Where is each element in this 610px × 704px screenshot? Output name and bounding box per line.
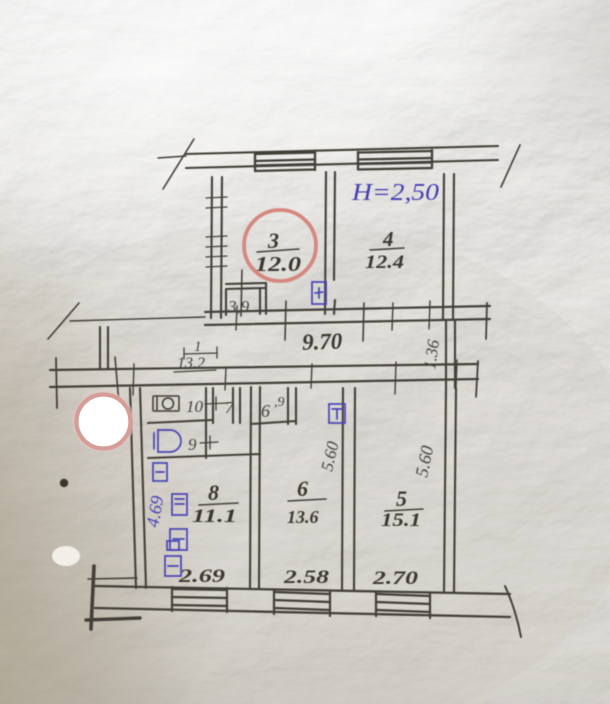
svg-text:4: 4: [382, 227, 394, 251]
svg-text:2.69: 2.69: [178, 566, 226, 587]
svg-text:15.1: 15.1: [381, 510, 421, 531]
svg-text:6: 6: [261, 401, 270, 421]
svg-text:11.1: 11.1: [192, 506, 237, 527]
svg-text:2.58: 2.58: [283, 567, 330, 588]
svg-text:,9: ,9: [274, 395, 285, 410]
svg-text:8: 8: [208, 480, 219, 505]
svg-text:3,9: 3,9: [227, 297, 250, 316]
svg-text:2.70: 2.70: [372, 568, 419, 589]
svg-text:12.4: 12.4: [365, 252, 404, 273]
svg-text:12.0: 12.0: [255, 252, 302, 276]
svg-text:1: 1: [194, 339, 202, 355]
svg-text:3: 3: [267, 228, 279, 253]
svg-text:9.70: 9.70: [302, 328, 344, 354]
svg-text:9: 9: [188, 435, 197, 454]
svg-text:6: 6: [297, 476, 308, 501]
svg-text:13.6: 13.6: [287, 507, 319, 527]
svg-text:13.2: 13.2: [177, 355, 205, 372]
svg-text:5: 5: [396, 486, 407, 511]
svg-text:10: 10: [186, 397, 204, 416]
svg-text:H=2,50: H=2,50: [351, 180, 439, 206]
